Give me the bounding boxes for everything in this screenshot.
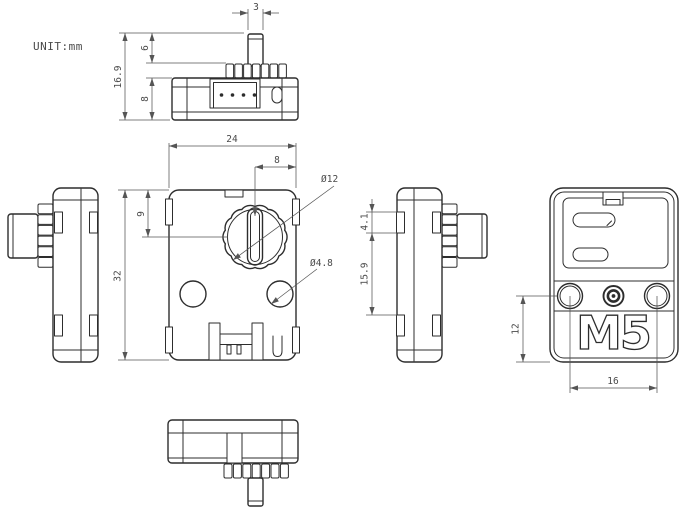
dim-text-clip-spacing: 15.9: [360, 262, 371, 285]
connector-pin: [242, 93, 246, 97]
top-tab: [225, 190, 243, 197]
back-view: M5 12 16: [511, 188, 679, 393]
dim-text-body-height: 8: [140, 96, 151, 102]
dim-knob-from-top: 9: [136, 190, 148, 237]
dim-clip-height: 4.1 15.9: [360, 199, 398, 315]
mount-clip: [166, 199, 173, 225]
shaft: [248, 478, 263, 506]
mount-clip: [166, 327, 173, 353]
dim-shaft-height: 6: [140, 33, 226, 63]
dim-text-shaft-height: 6: [140, 45, 151, 51]
knurl-teeth: [224, 464, 288, 478]
technical-drawing: UNIT:mm: [0, 0, 686, 517]
connector-pin: [253, 93, 257, 97]
knurl-side: [38, 204, 53, 267]
mount-clip: [293, 327, 300, 353]
top-view: 3 16.9 6 8: [113, 2, 298, 120]
dim-text-knob-diameter: Ø12: [321, 174, 338, 185]
mount-clip: [55, 315, 63, 336]
dim-text-body-width: 24: [226, 134, 238, 145]
dim-text-clip-height: 4.1: [360, 213, 371, 230]
mount-clip: [433, 315, 441, 336]
connector-pin: [220, 93, 224, 97]
mount-clip: [397, 212, 405, 233]
right-side-view: 4.1 15.9: [360, 188, 488, 362]
dim-text-hole-to-bottom: 12: [511, 323, 522, 334]
dim-body-height-top: 8: [140, 78, 172, 120]
dim-text-shaft-width: 3: [253, 2, 259, 13]
connector-pin: [231, 93, 235, 97]
unit-label: UNIT:mm: [33, 40, 83, 53]
dim-text-total-height: 16.9: [113, 65, 124, 88]
mount-clip: [397, 315, 405, 336]
front-view: 24 8 9 32 Ø12 Ø4.8: [113, 134, 339, 360]
mount-clip: [90, 315, 98, 336]
dim-shaft-width: 3: [232, 2, 279, 30]
dim-text-knob-offset: 8: [274, 155, 280, 166]
dim-text-front-height: 32: [113, 270, 124, 281]
drawing-canvas: UNIT:mm: [0, 0, 686, 517]
left-side-view: [8, 188, 98, 362]
knurl-side: [442, 204, 457, 267]
bottom-view: [168, 420, 298, 506]
dim-text-knob-from-top: 9: [136, 211, 147, 217]
knurl-teeth: [226, 64, 286, 78]
shaft-housing-tab: [227, 433, 242, 463]
dim-text-hole-diameter: Ø4.8: [310, 258, 333, 269]
grove-connector: [210, 79, 260, 108]
mount-clip: [55, 212, 63, 233]
mount-clip: [433, 212, 441, 233]
m5-logo: M5: [576, 306, 650, 360]
mount-clip: [90, 212, 98, 233]
dim-text-hole-spacing: 16: [607, 376, 619, 387]
